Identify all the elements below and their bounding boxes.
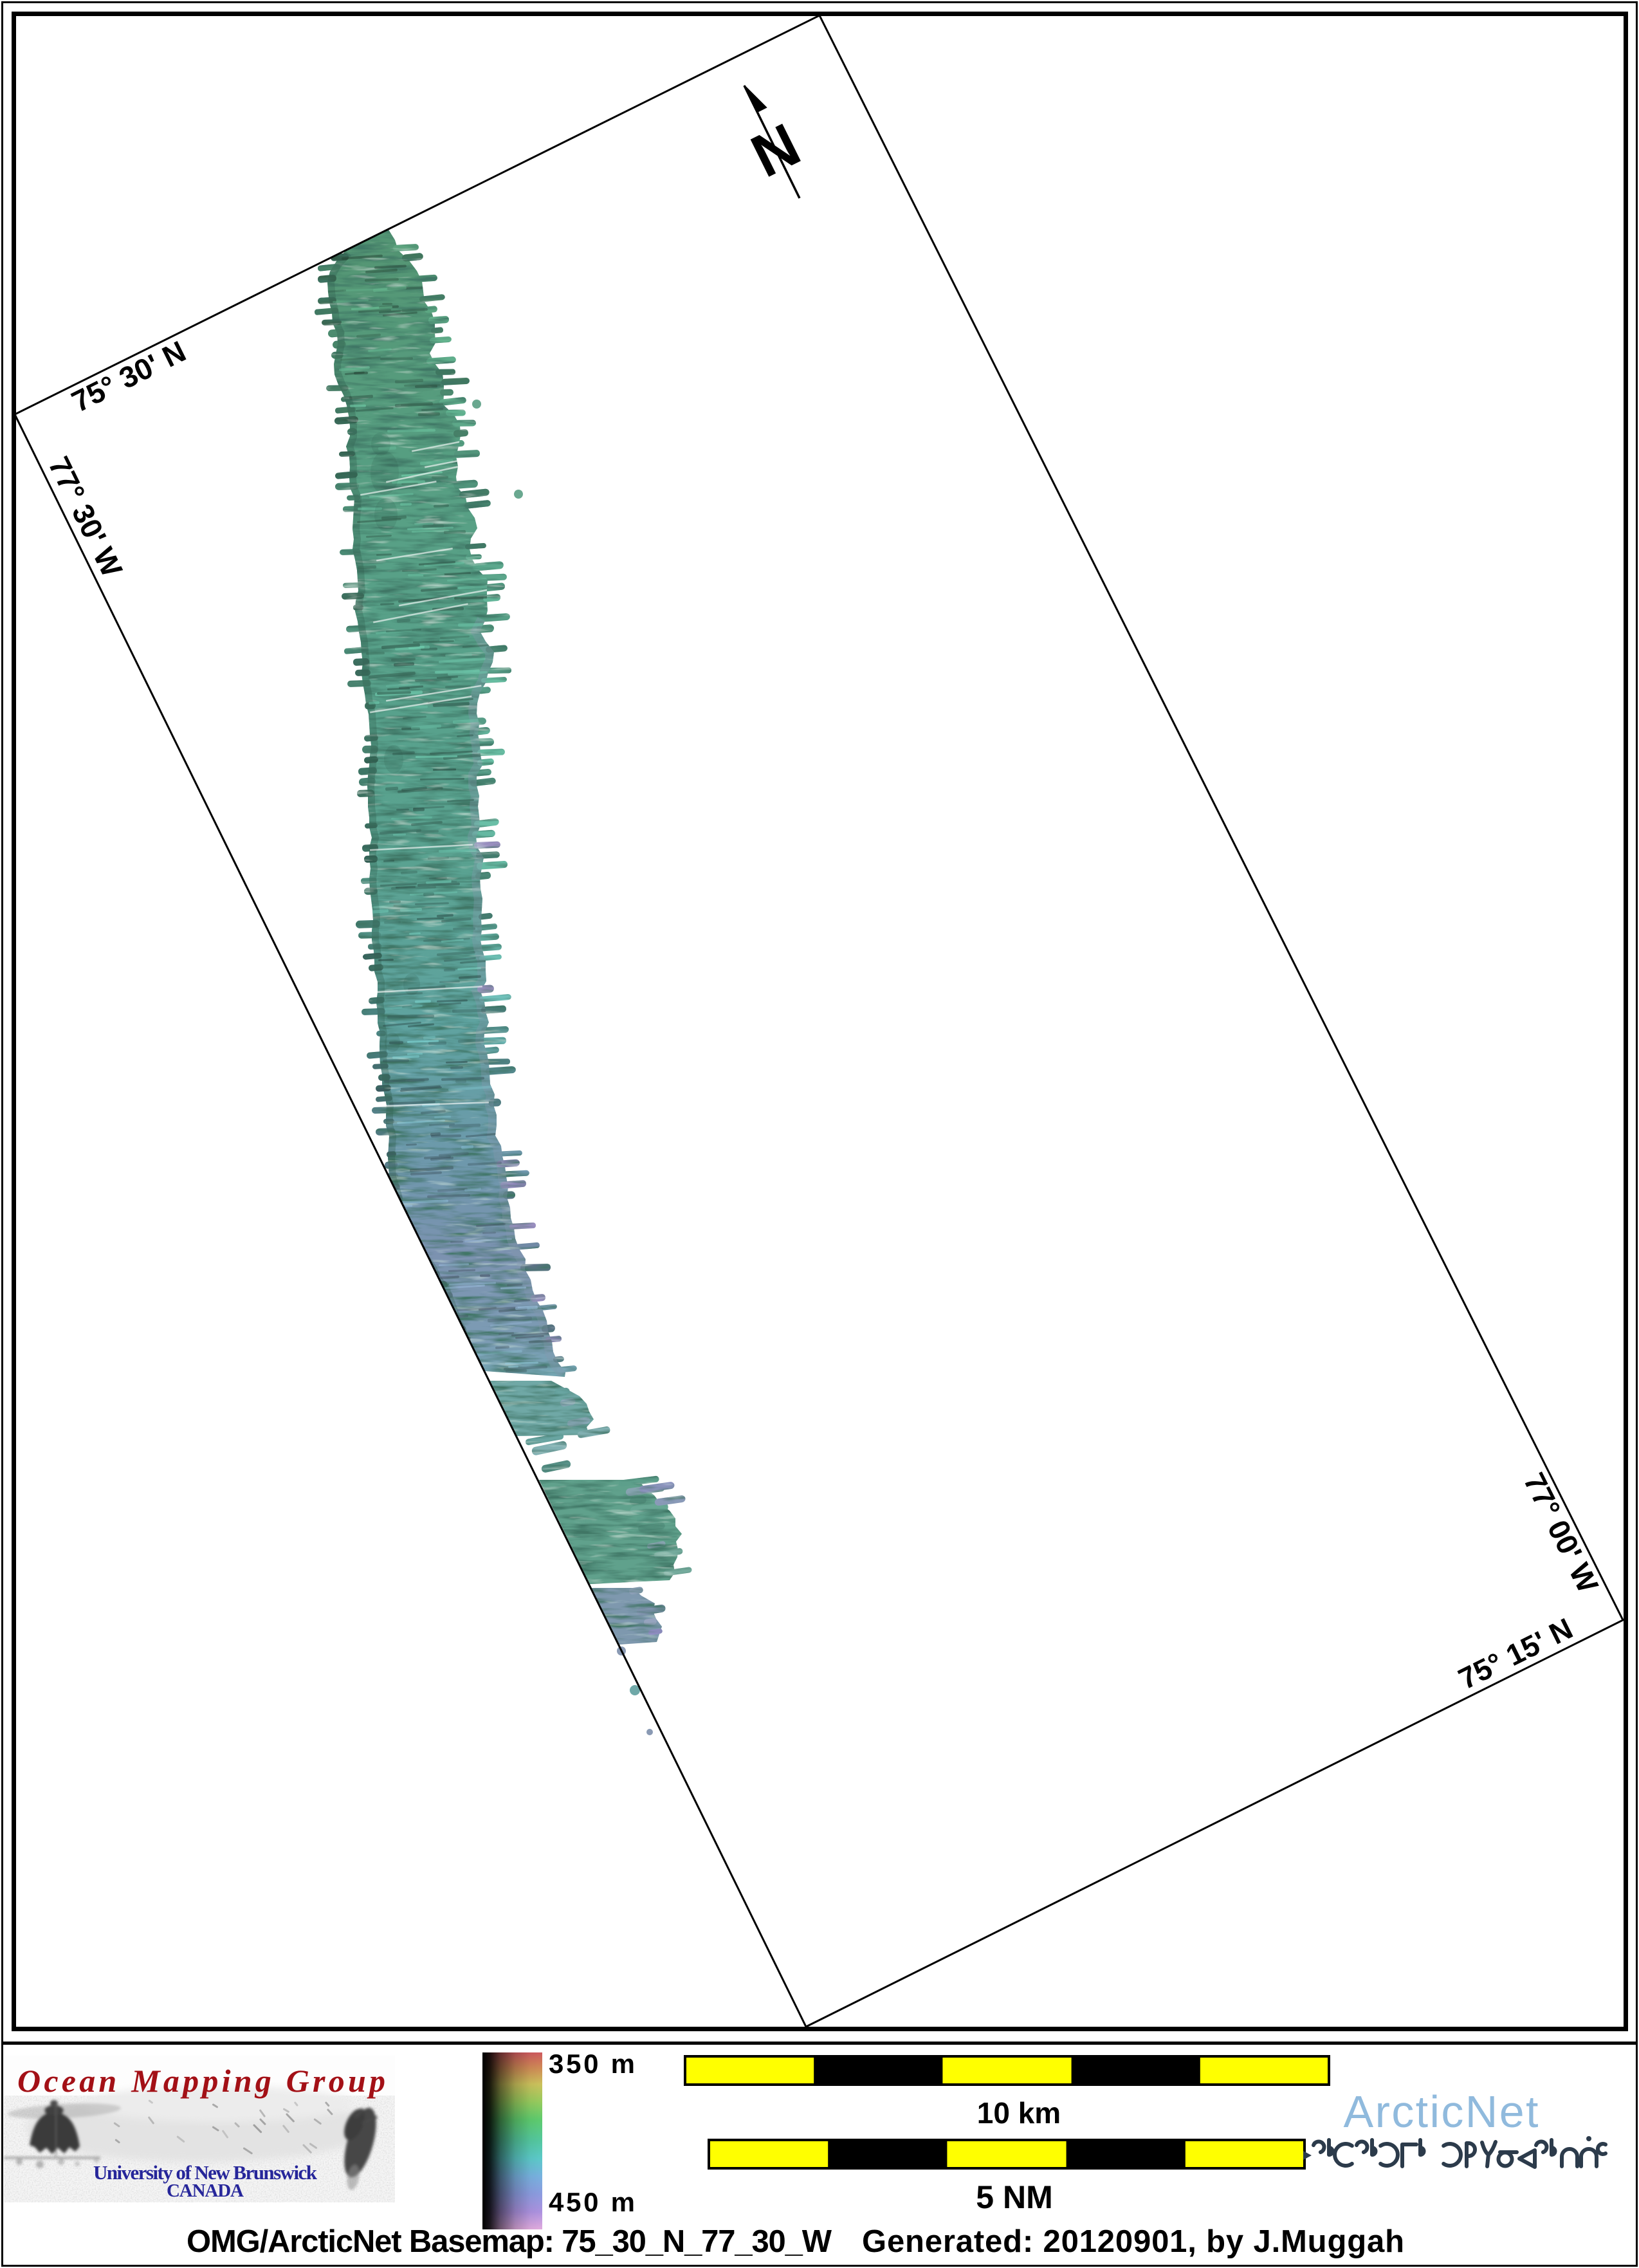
svg-text:OMG/ArcticNet Basemap: 75_30_N: OMG/ArcticNet Basemap: 75_30_N_77_30_W	[187, 2224, 832, 2259]
svg-text:Generated: 20120901, by J.Mugg: Generated: 20120901, by J.Muggah	[862, 2224, 1404, 2259]
svg-text:CANADA: CANADA	[167, 2180, 244, 2201]
svg-text:ArcticNet: ArcticNet	[1344, 2087, 1539, 2137]
svg-text:5 NM: 5 NM	[976, 2179, 1052, 2215]
svg-text:450 m: 450 m	[549, 2187, 635, 2217]
svg-text:350 m: 350 m	[549, 2049, 635, 2079]
svg-text:10 km: 10 km	[977, 2096, 1061, 2130]
